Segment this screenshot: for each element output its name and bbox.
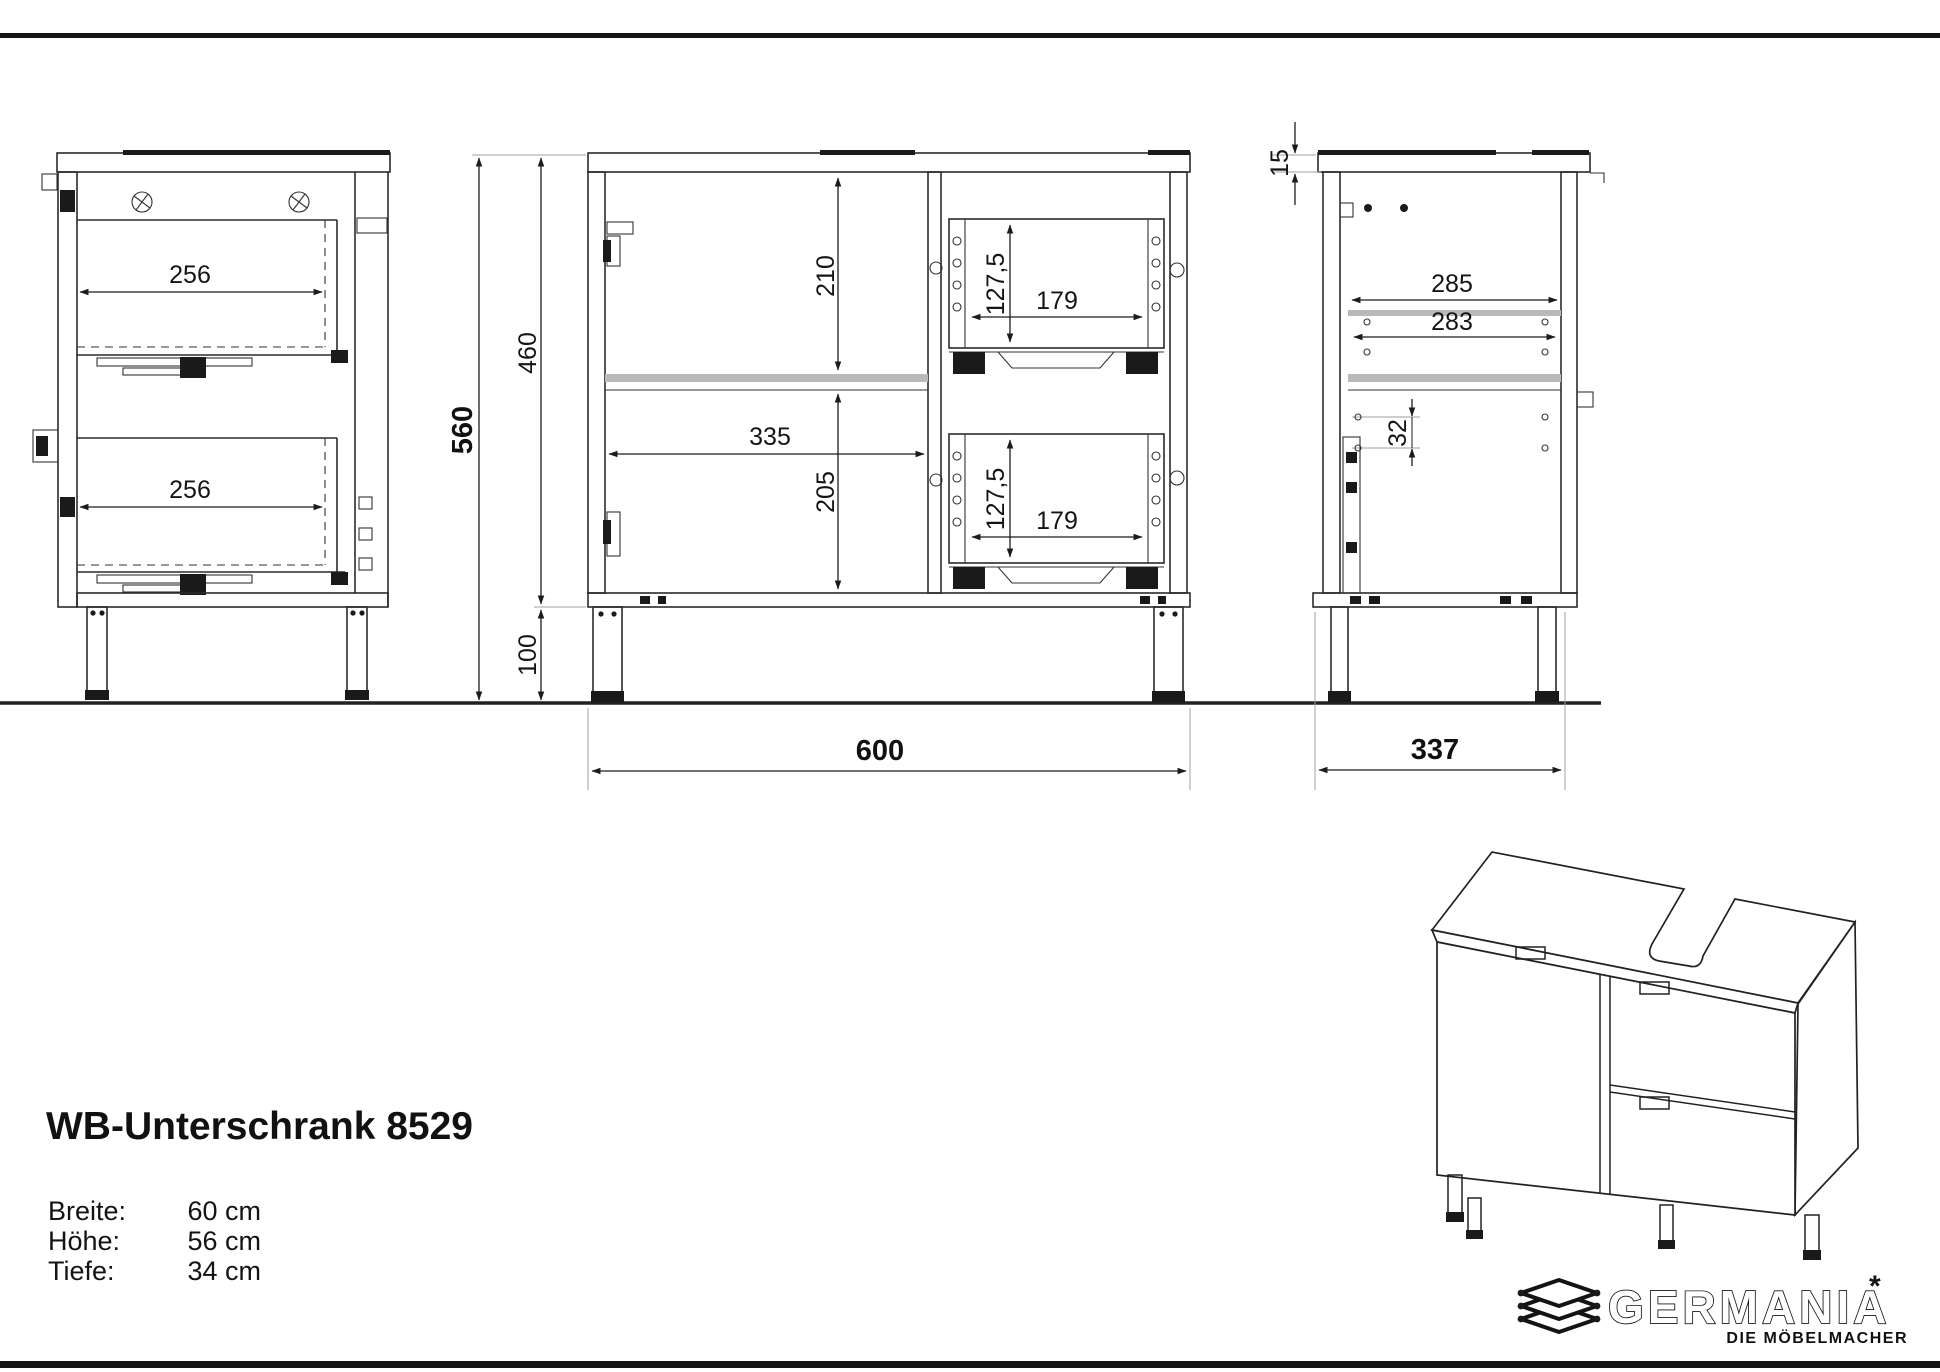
dim-label-hole-spacing: 32 (1384, 419, 1412, 447)
view-3d-perspective (1432, 852, 1858, 1260)
spec-table: Breite: 60 cm Höhe: 56 cm Tiefe: 34 cm (48, 1196, 261, 1286)
dim-label-total-depth: 337 (1411, 734, 1459, 766)
dim-label-total-width: 600 (856, 735, 904, 767)
dim-label-drawer-depth-top: 256 (169, 261, 211, 289)
drawer-unit-top: 127,5 179 (930, 219, 1184, 374)
spec-value: 60 cm (188, 1196, 262, 1226)
drawer-section-top: 256 (77, 220, 345, 378)
drawing-canvas: 256 256 (0, 0, 1940, 1372)
view-front-section: 210 205 335 127,5 (447, 150, 1190, 790)
hinge-top (603, 222, 633, 266)
logo-tagline: DIE MÖBELMACHER (1726, 1330, 1908, 1348)
dim-label-drawer-height-top: 127,5 (982, 253, 1010, 316)
dim-label-shelf-width: 335 (749, 423, 791, 451)
spec-label: Tiefe: (48, 1256, 180, 1286)
view-side-section: 256 256 (33, 150, 390, 700)
dim-label-bottom-compartment: 205 (812, 471, 840, 513)
spec-row-width: Breite: 60 cm (48, 1196, 261, 1226)
dim-label-inner-depth-lower: 283 (1431, 308, 1473, 336)
dim-label-top-compartment: 210 (812, 255, 840, 297)
dim-label-top-thickness: 15 (1266, 149, 1294, 177)
screw-symbol (132, 192, 309, 212)
logo-wordmark: GERMANIA (1608, 1281, 1890, 1333)
shelf (605, 374, 928, 382)
dim-label-drawer-depth-bottom: 256 (169, 476, 211, 504)
spec-value: 34 cm (188, 1256, 262, 1286)
spec-label: Breite: (48, 1196, 180, 1226)
dim-label-drawer-height-bottom: 127,5 (982, 468, 1010, 531)
product-title: WB-Unterschrank 8529 (46, 1105, 473, 1149)
spec-row-depth: Tiefe: 34 cm (48, 1256, 261, 1286)
dim-label-total-height: 560 (447, 406, 479, 454)
dim-label-leg-height: 100 (514, 634, 542, 676)
dim-label-body-height: 460 (514, 332, 542, 374)
dim-label-drawer-width-top: 179 (1036, 287, 1078, 315)
view-rear-side-section: 15 285 283 32 (1266, 122, 1604, 790)
drawer-unit-bottom: 127,5 179 (930, 434, 1184, 589)
technical-drawing-page: 256 256 (0, 0, 1940, 1372)
germania-logo-icon (1518, 1280, 1601, 1332)
drawer-section-bottom: 256 (77, 438, 345, 595)
spec-label: Höhe: (48, 1226, 180, 1256)
dim-label-inner-depth-upper: 285 (1431, 270, 1473, 298)
spec-value: 56 cm (188, 1226, 262, 1256)
spec-row-height: Höhe: 56 cm (48, 1226, 261, 1256)
dim-label-drawer-width-bottom: 179 (1036, 507, 1078, 535)
logo-trademark-star: * (1869, 1270, 1881, 1303)
